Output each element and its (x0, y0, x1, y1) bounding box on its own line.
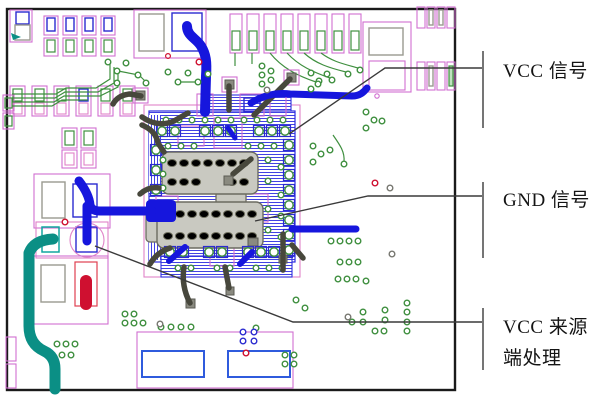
label-gnd-signal: GND 信号 (503, 185, 590, 212)
label-vcc-signal: VCC 信号 (503, 56, 588, 83)
label-vcc-source: VCC 来源 端处理 (503, 312, 588, 374)
label-vcc-source-line2: 端处理 (503, 343, 588, 374)
label-vcc-source-line1: VCC 来源 (503, 312, 588, 343)
pcb-annotated-figure: VCC 信号 GND 信号 VCC 来源 端处理 (0, 0, 600, 400)
